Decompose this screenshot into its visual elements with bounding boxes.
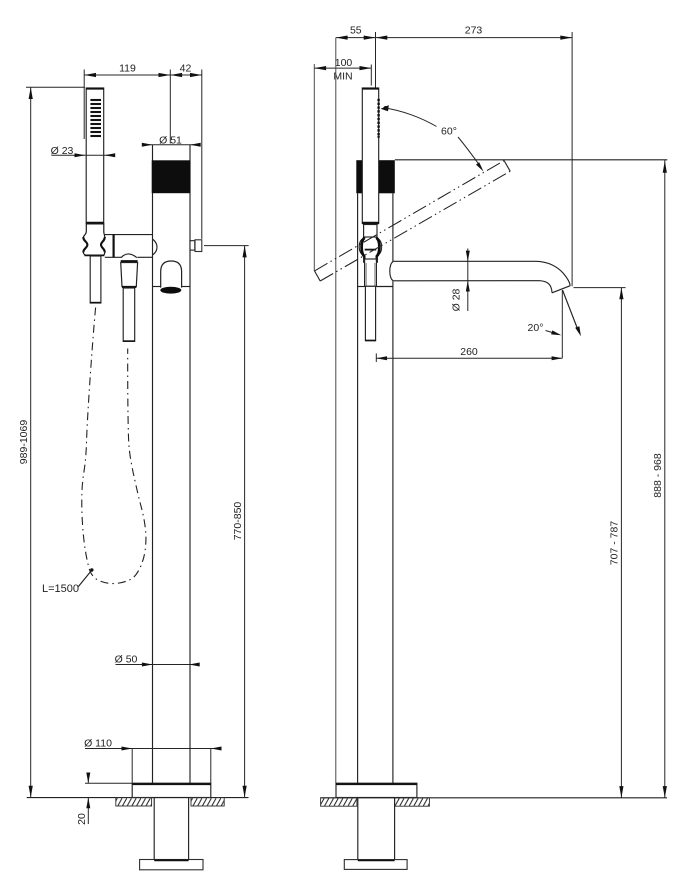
svg-text:119: 119 <box>119 63 136 75</box>
svg-text:20°: 20° <box>528 322 544 334</box>
svg-text:Ø 28: Ø 28 <box>451 288 463 311</box>
svg-text:60°: 60° <box>441 126 457 138</box>
svg-text:273: 273 <box>465 25 483 37</box>
svg-text:707 - 787: 707 - 787 <box>609 521 621 566</box>
svg-text:L=1500: L=1500 <box>42 583 79 595</box>
svg-text:770-850: 770-850 <box>232 502 244 541</box>
svg-text:989-1069: 989-1069 <box>18 420 30 465</box>
svg-text:42: 42 <box>180 63 192 75</box>
svg-text:Ø 110: Ø 110 <box>84 738 112 750</box>
svg-text:888 - 968: 888 - 968 <box>652 453 664 498</box>
svg-text:55: 55 <box>350 25 362 37</box>
svg-text:100: 100 <box>335 57 353 69</box>
svg-text:Ø 51: Ø 51 <box>159 135 182 147</box>
svg-text:20: 20 <box>76 813 88 825</box>
svg-text:260: 260 <box>460 346 478 358</box>
svg-text:Ø 23: Ø 23 <box>51 145 74 157</box>
svg-text:Ø 50: Ø 50 <box>115 654 138 666</box>
